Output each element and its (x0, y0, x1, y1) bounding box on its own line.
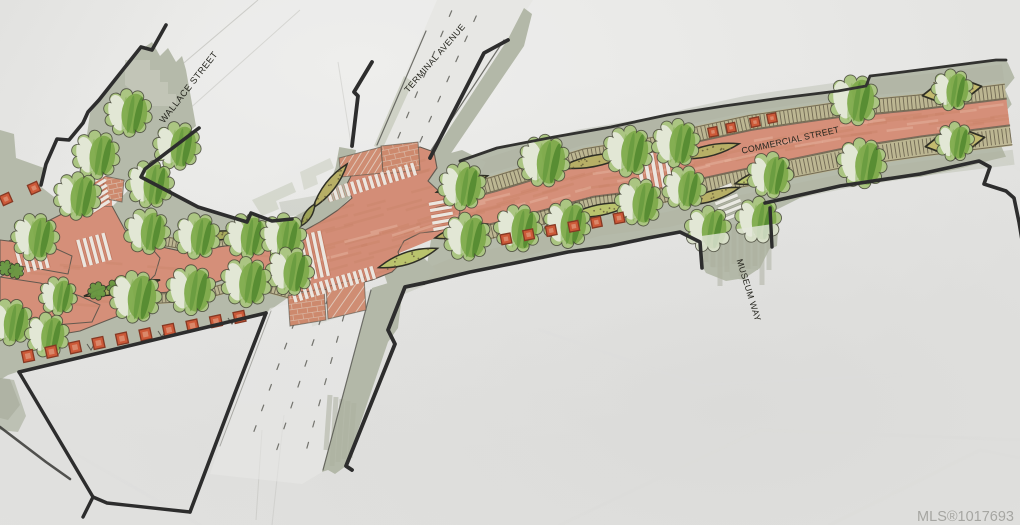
svg-text:MLS®1017693: MLS®1017693 (917, 509, 1014, 525)
